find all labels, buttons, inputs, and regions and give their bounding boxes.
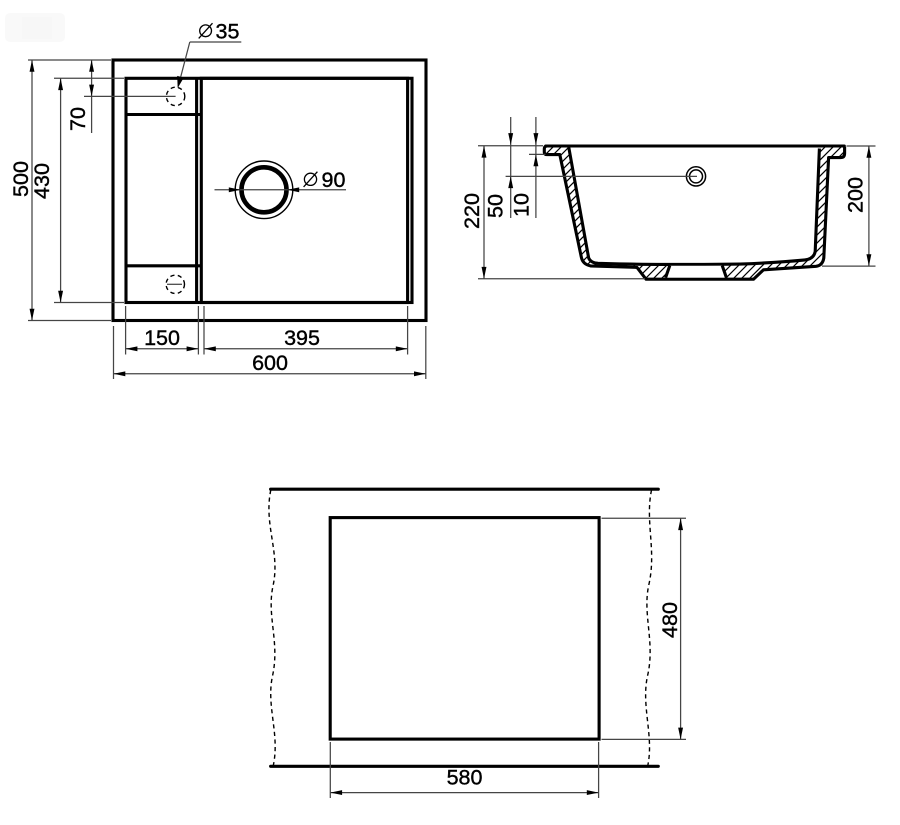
svg-text:580: 580	[447, 766, 483, 790]
svg-text:90: 90	[322, 168, 346, 192]
svg-text:395: 395	[284, 326, 320, 350]
svg-text:150: 150	[144, 326, 180, 350]
svg-text:430: 430	[30, 163, 54, 199]
svg-text:600: 600	[252, 351, 288, 375]
svg-text:10: 10	[510, 193, 534, 217]
svg-text:500: 500	[9, 161, 33, 197]
svg-text:35: 35	[216, 20, 240, 44]
svg-text:200: 200	[844, 177, 868, 213]
svg-text:50: 50	[484, 194, 508, 218]
svg-text:220: 220	[460, 193, 484, 229]
svg-text:70: 70	[66, 107, 90, 131]
svg-text:480: 480	[658, 602, 682, 638]
